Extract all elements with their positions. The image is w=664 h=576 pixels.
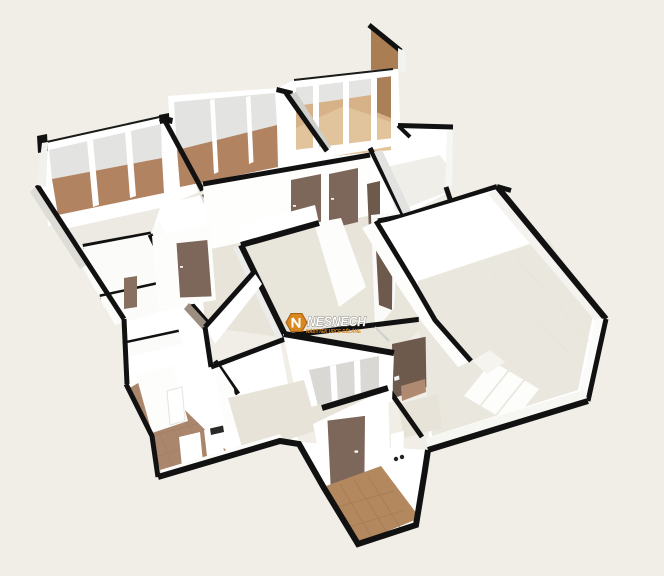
svg-text:NÁBYTEK UPCE DĚLÁME: NÁBYTEK UPCE DĚLÁME: [306, 327, 361, 335]
svg-text:NESNECH: NESNECH: [307, 314, 366, 329]
